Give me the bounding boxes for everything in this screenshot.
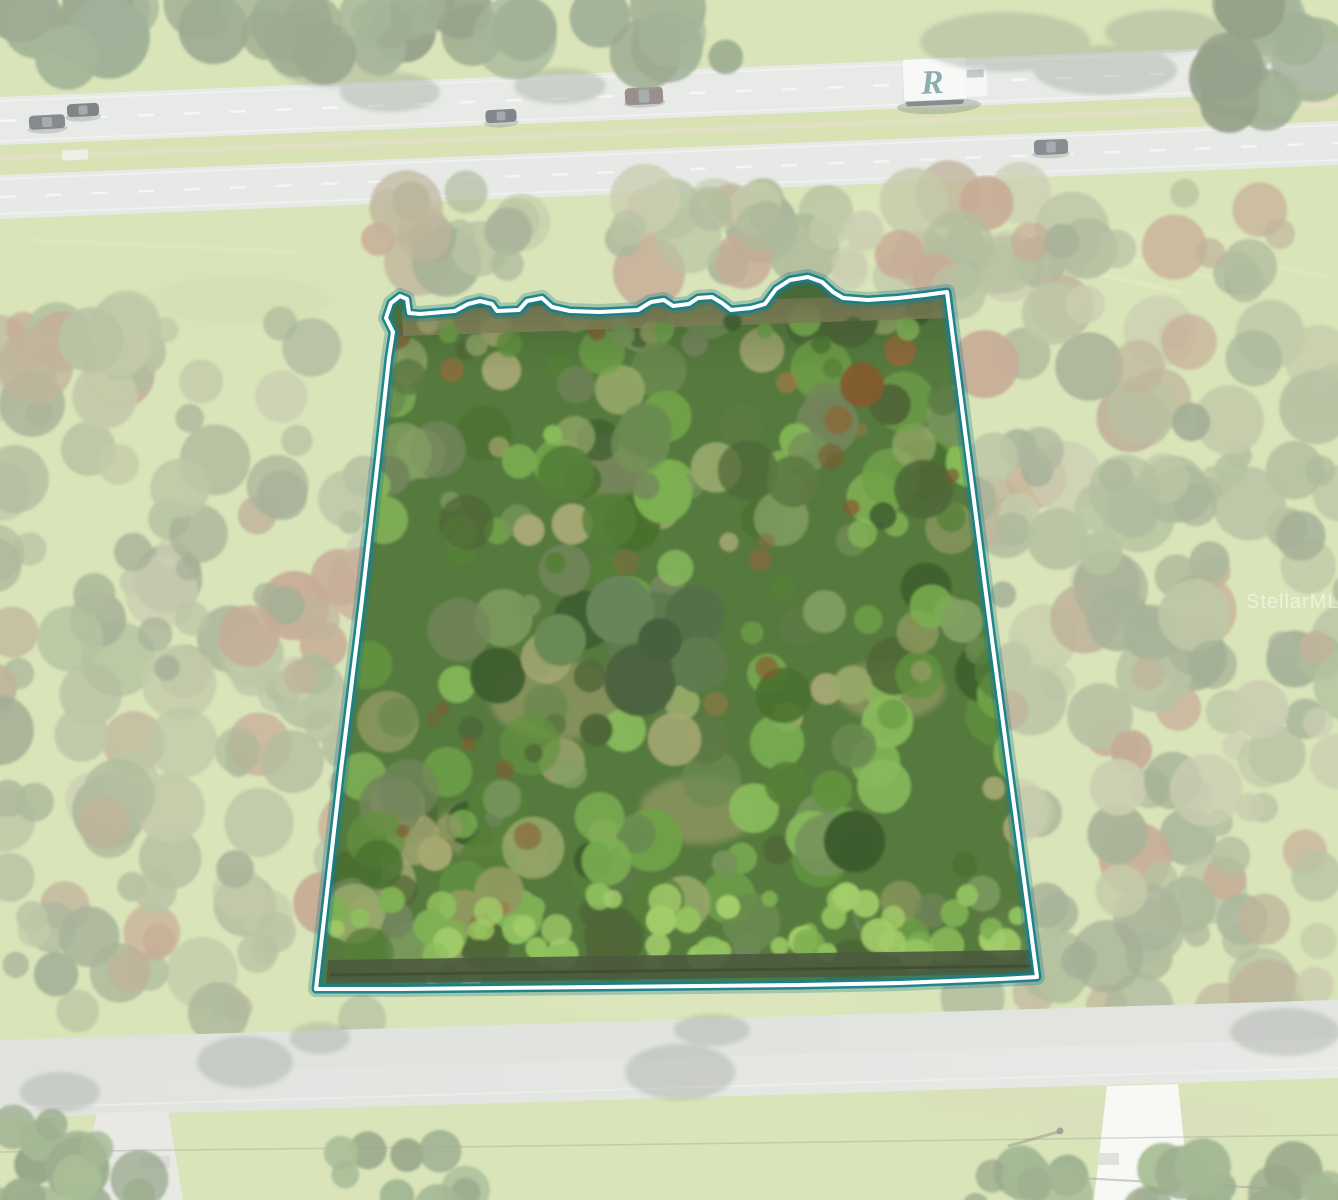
foliage-accent-blob [462,737,476,751]
foliage-blob [831,724,876,769]
hedge-blob [525,897,546,918]
foliage-blob [483,780,521,818]
foliage-accent-blob [495,760,514,779]
hedge-blob [645,933,670,958]
watermark: StellarMLS [1246,591,1338,613]
foliage-blob [582,836,632,886]
hedge-blob [956,884,978,906]
foliage-blob [833,666,872,705]
foliage-accent-blob [703,691,728,716]
foliage-blob [750,715,805,770]
foliage-blob [712,850,738,876]
foliage-blob [982,777,1005,800]
foliage-accent-blob [436,701,449,714]
foliage-blob [524,744,543,763]
hedge-blob [800,934,818,952]
foliage-blob [824,811,885,872]
foliage-blob [765,762,810,807]
foliage-blob [438,666,475,703]
hedge-blob [675,907,701,933]
hedge-blob [861,918,896,953]
foliage-blob [857,759,911,813]
foliage-blob [648,712,702,766]
foliage-accent-blob [514,822,542,850]
foliage-blob [952,853,977,878]
hedge-blob [541,914,572,945]
foliage-blob [418,836,453,871]
foliage-blob [555,757,587,789]
hedge-blob [832,882,860,910]
foliage-blob [379,759,439,819]
foliage-blob [877,699,907,729]
hedge-blob [603,890,622,909]
hedge-blob [379,887,406,914]
hedge-blob [761,891,777,907]
foliage-accent-blob [426,712,440,726]
hedge-blob [716,895,740,919]
foliage-blob [354,840,403,889]
hedge-blob [513,915,536,938]
aerial-photo-canvas: R [0,0,1338,1200]
aerial-photo: R [0,0,1338,1200]
foliage-accent-blob [396,825,409,838]
hedge-blob [646,905,677,936]
foliage-blob [812,771,853,812]
foliage-blob [575,792,625,842]
hedge-blob [474,897,503,926]
foliage-blob [580,714,613,747]
foliage-blob [437,814,462,839]
hedge-blob [770,937,789,956]
hedge-blob [350,908,369,927]
foliage-blob [378,697,418,737]
